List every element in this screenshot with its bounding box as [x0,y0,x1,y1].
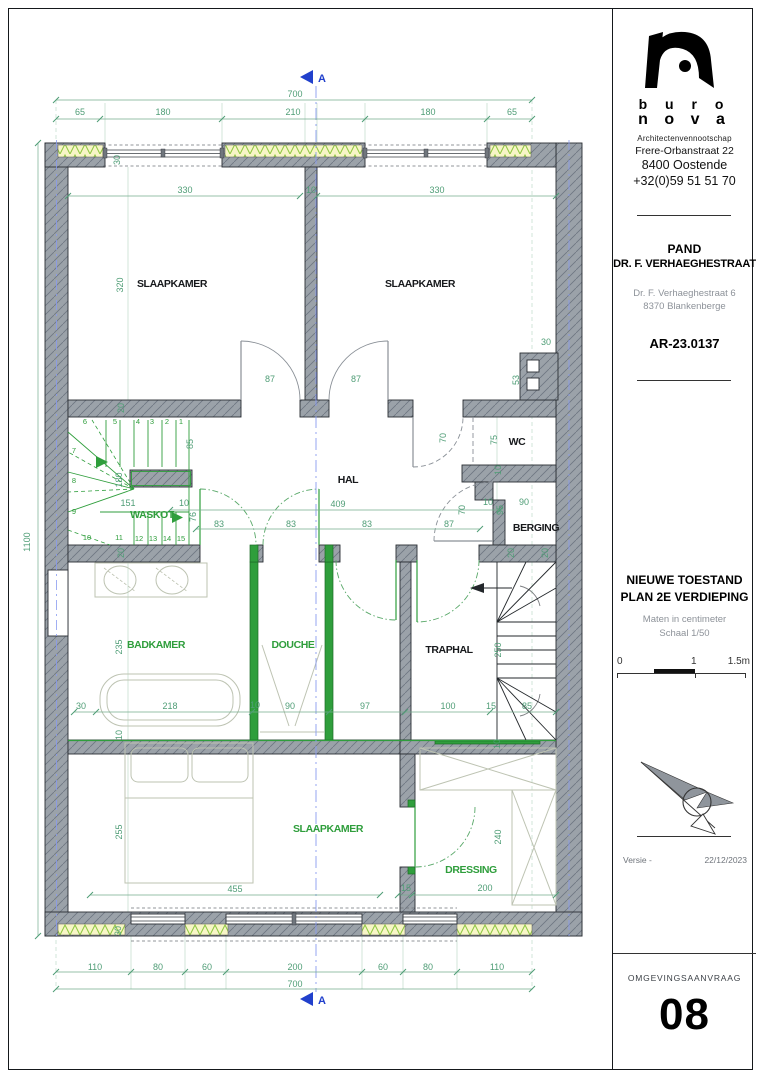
stair-traphal [470,562,556,740]
dimension-text: 76 [188,512,198,522]
stair-direction-arrow [470,583,484,593]
dimension-text: 700 [287,979,302,989]
project-name-line2: DR. F. VERHAEGHESTRAAT [613,258,756,270]
dimension-text: 210 [285,107,300,117]
north-arrow-icon [627,746,745,838]
stair-step-number: 9 [72,507,76,516]
firm-descriptor: Architectenvennootschap [613,134,756,143]
shower-tray [260,645,324,732]
dimension-text: 151 [120,498,135,508]
room-label: HAL [338,474,359,486]
stair-step-number: 12 [135,534,143,543]
dimension-text: 80 [423,962,433,972]
dimension-text: 100 [440,701,455,711]
project-name-line1: PAND [613,242,756,256]
scale-bar: 0 1 1.5m [617,656,750,684]
stair-step-number: 15 [177,534,185,543]
wall-niche [48,570,68,636]
project-address-line2: 8370 Blankenberge [613,301,756,312]
stair-step-number: 5 [113,417,117,426]
dimension-text: 87 [444,519,454,529]
dimension-text: 330 [429,185,444,195]
room-label: SLAAPKAMER [293,823,364,835]
stair-step-number: 8 [72,476,76,485]
door-dressing [415,807,475,867]
dimension-text: 83 [362,519,372,529]
dimension-text: 235 [114,639,124,654]
dimension-text: 240 [493,829,503,844]
dimension-text: 20 [506,548,516,558]
dimension-text: 10 [250,700,260,710]
version-label: Versie - [623,855,652,865]
dimension-text: 75 [489,435,499,445]
dimension-text: 455 [227,884,242,894]
dimension-text: 97 [360,701,370,711]
separator [637,215,731,216]
dimension-text: 20 [116,548,126,558]
stair-step-number: 13 [149,534,157,543]
dimension-text: 15 [486,701,496,711]
dimension-text: 65 [507,107,517,117]
firm-city: 8400 Oostende [613,158,756,172]
dimension-texts: 7006518021018065330103303032020305387878… [22,89,551,989]
firm-phone: +32(0)59 51 51 70 [613,174,756,188]
dimension-text: 87 [351,374,361,384]
drawing-sheet: A A 700651802101806533010330303202030538 [0,0,763,1080]
stair-step-number: 3 [150,417,154,426]
dimension-text: 65 [75,107,85,117]
stair-step-number: 7 [72,446,76,455]
dimension-text: 218 [162,701,177,711]
room-labels: SLAAPKAMERSLAAPKAMERHALWCBERGINGWASKOTBA… [127,278,559,876]
section-letter: A [318,995,326,1007]
dimension-text: 180 [114,472,124,487]
section-marker-a-bottom: A [300,992,326,1007]
room-label: DRESSING [445,864,497,876]
drawing-title-line2: PLAN 2E VERDIEPING [613,590,756,604]
stair-step-number: 14 [163,534,171,543]
chimney-flue [527,378,539,390]
scale-note: Schaal 1/50 [613,628,756,639]
scale-bar-end: 1.5m [728,656,750,667]
insulation-layer [58,145,532,935]
dimension-text: 10 [492,739,502,749]
section-marker-a-top: A [300,70,326,85]
stair-step-number: 11 [115,533,123,542]
room-label: TRAPHAL [425,644,473,656]
bed [125,743,253,883]
buro-nova-logo-icon [633,22,736,94]
dimension-text: 200 [477,883,492,893]
dimension-text: 10 [483,497,493,507]
dimension-text: 83 [214,519,224,529]
dimension-text: 30 [113,926,123,936]
scale-bar-mid: 1 [691,656,697,667]
room-label: DOUCHE [271,639,314,651]
dimension-text: 87 [265,374,275,384]
dimension-text: 200 [287,962,302,972]
section-letter: A [318,73,326,85]
walls-layer [45,143,582,936]
dimension-text: 180 [420,107,435,117]
version-date: 22/12/2023 [704,855,747,865]
bathtub [100,674,240,726]
stair-step-number: 2 [165,417,169,426]
new-walls-layer [68,472,556,875]
window [403,914,457,924]
dimension-text: 10 [179,498,189,508]
dimension-text: 1100 [22,532,32,551]
title-block-panel: b u r o n o v a Architectenvennootschap … [612,8,755,1070]
window [363,145,489,166]
drawing-title-line1: NIEUWE TOESTAND [613,573,756,587]
door-bedroom-left [241,341,300,400]
dimension-lines [35,97,559,992]
wardrobe [420,748,556,905]
dimension-text: 250 [493,642,503,657]
door-passage [336,560,396,620]
dimension-text: 70 [457,505,467,515]
separator [613,953,756,954]
dimension-text: 255 [114,824,124,839]
window [131,914,185,924]
stair-step-number: 10 [83,533,91,542]
stair-step-number: 4 [136,417,140,426]
separator [637,380,731,381]
room-label: BADKAMER [127,639,186,651]
dimension-text: 80 [153,962,163,972]
dimension-text: 90 [519,497,529,507]
door-badkamer [200,489,256,545]
chimney-flue [527,360,539,372]
stair-step-number: 6 [83,417,87,426]
dimension-text: 95 [495,505,505,515]
dimension-text: 20 [116,403,126,413]
dimension-text: 60 [202,962,212,972]
document-type: OMGEVINGSAANVRAAG [613,973,756,983]
room-label: WASKOT [130,509,175,521]
doors-layer [200,341,493,867]
dimension-text: 30 [76,701,86,711]
washbasins [95,563,207,597]
room-label: WC [509,436,527,448]
dimension-text: 320 [115,277,125,292]
units-note: Maten in centimeter [613,614,756,625]
dimension-text: 110 [490,962,504,972]
dimension-text: 90 [285,701,295,711]
logo-word-nova: n o v a [613,111,756,129]
dimension-text: 110 [88,962,102,972]
dimension-text: 53 [511,375,521,385]
door-bedroom-right [329,341,388,400]
dimension-text: 700 [287,89,302,99]
windows-layer [103,145,489,941]
dimension-text: 10 [306,185,316,195]
project-reference: AR-23.0137 [613,336,756,351]
door-traphal [417,560,479,622]
dimension-text: 10 [114,730,124,740]
logo-word-buro: b u r o [613,96,756,112]
dimension-text: 409 [330,499,345,509]
dimension-text: 60 [378,962,388,972]
scale-bar-start: 0 [617,656,623,667]
dimension-text: 330 [177,185,192,195]
dimension-text: 15 [401,883,411,893]
dimension-text: 83 [286,519,296,529]
dimension-text: 70 [438,433,448,443]
project-address-line1: Dr. F. Verhaeghestraat 6 [613,288,756,299]
dimension-text: 85 [522,701,532,711]
dimension-text: 20 [540,548,550,558]
window [226,913,362,925]
sheet-number: 08 [613,990,756,1040]
room-label: SLAAPKAMER [385,278,456,290]
firm-street: Frere-Orbanstraat 22 [613,145,756,157]
room-label: SLAAPKAMER [137,278,208,290]
dimension-text: 30 [541,337,551,347]
dimension-text: 10 [493,465,503,475]
dimension-text: 85 [185,439,195,449]
stair-step-number: 1 [179,417,183,426]
door-douche [263,489,319,545]
dimension-text: 30 [112,155,122,165]
room-label: BERGING [513,522,559,534]
separator [637,836,731,837]
dimension-text: 180 [155,107,170,117]
